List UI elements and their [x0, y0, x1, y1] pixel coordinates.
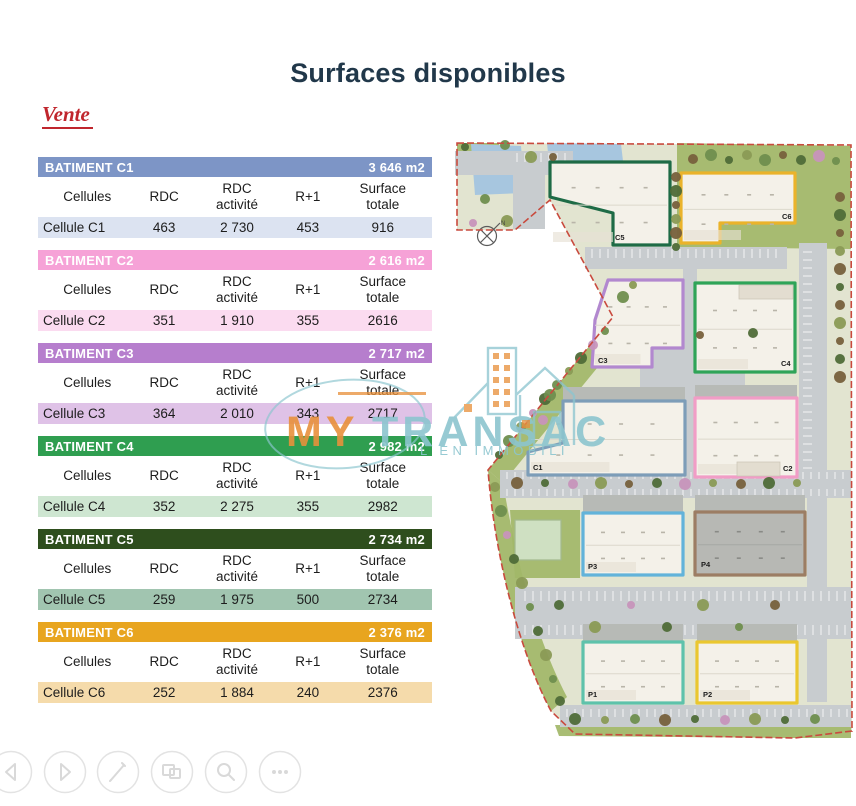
table-cell: 343	[282, 403, 333, 424]
column-header: R+1	[282, 270, 333, 310]
table-cell: 916	[333, 217, 432, 238]
table-cell: 1 975	[192, 589, 283, 610]
column-header: RDC	[137, 642, 192, 682]
tables-panel: BATIMENT C13 646 m2CellulesRDCRDC activi…	[38, 157, 432, 715]
table-cell: 252	[137, 682, 192, 703]
building-table-header: BATIMENT C13 646 m2	[38, 157, 432, 177]
building-name: BATIMENT C6	[45, 625, 134, 640]
table-cell: 2376	[333, 682, 432, 703]
surfaces-table: CellulesRDCRDC activitéR+1Surface totale…	[38, 177, 432, 238]
table-cell: 355	[282, 496, 333, 517]
table-cell: 453	[282, 217, 333, 238]
column-header: Cellules	[38, 177, 137, 217]
map-building-label: C6	[782, 212, 792, 221]
site-plan-svg: C5C6C3C4C1C2P3P4P1P2N	[455, 135, 856, 745]
table-cell: Cellule C6	[38, 682, 137, 703]
column-header: RDC	[137, 549, 192, 589]
map-building-P1: P1	[583, 642, 683, 703]
map-building-P3: P3	[583, 513, 683, 575]
zoom-search-button[interactable]	[206, 752, 247, 793]
table-cell: 351	[137, 310, 192, 331]
column-header: Surface totale	[333, 642, 432, 682]
surfaces-table: CellulesRDCRDC activitéR+1Surface totale…	[38, 270, 432, 331]
column-header: RDC	[137, 363, 192, 403]
section-label-vente: Vente	[42, 102, 93, 129]
table-cell: Cellule C1	[38, 217, 137, 238]
table-cell: 2717	[333, 403, 432, 424]
table-cell: 463	[137, 217, 192, 238]
edit-pen-button[interactable]	[98, 752, 139, 793]
map-building-label: C5	[615, 233, 625, 242]
building-table-2: BATIMENT C22 616 m2CellulesRDCRDC activi…	[38, 250, 432, 331]
building-table-1: BATIMENT C13 646 m2CellulesRDCRDC activi…	[38, 157, 432, 238]
table-cell: 1 910	[192, 310, 283, 331]
building-table-6: BATIMENT C62 376 m2CellulesRDCRDC activi…	[38, 622, 432, 703]
map-building-C4: C4	[695, 283, 795, 372]
table-cell: 2982	[333, 496, 432, 517]
column-header: RDC activité	[192, 642, 283, 682]
more-options-button[interactable]	[260, 752, 301, 793]
surfaces-table: CellulesRDCRDC activitéR+1Surface totale…	[38, 363, 432, 424]
table-cell: 355	[282, 310, 333, 331]
page-title: Surfaces disponibles	[0, 58, 856, 89]
table-cell: 364	[137, 403, 192, 424]
building-name: BATIMENT C4	[45, 439, 134, 454]
copy-images-button[interactable]	[152, 752, 193, 793]
column-header: Cellules	[38, 642, 137, 682]
map-building-label: C3	[598, 356, 608, 365]
table-cell: 1 884	[192, 682, 283, 703]
compass-north-label: N	[501, 221, 505, 227]
surfaces-table: CellulesRDCRDC activitéR+1Surface totale…	[38, 642, 432, 703]
map-building-label: P3	[588, 562, 597, 571]
map-building-P4: P4	[695, 512, 805, 575]
next-button[interactable]	[45, 752, 86, 793]
map-building-C2: C2	[695, 398, 797, 477]
column-header: Surface totale	[333, 363, 432, 403]
column-header: RDC activité	[192, 270, 283, 310]
building-name: BATIMENT C5	[45, 532, 134, 547]
column-header: RDC activité	[192, 177, 283, 217]
table-cell: 2616	[333, 310, 432, 331]
surfaces-table: CellulesRDCRDC activitéR+1Surface totale…	[38, 549, 432, 610]
annex-building	[515, 520, 561, 560]
table-cell: Cellule C4	[38, 496, 137, 517]
more-options-icon	[272, 770, 288, 774]
column-header: Cellules	[38, 270, 137, 310]
column-header: RDC	[137, 456, 192, 496]
building-table-header: BATIMENT C22 616 m2	[38, 250, 432, 270]
table-cell: 2734	[333, 589, 432, 610]
column-header: Surface totale	[333, 549, 432, 589]
table-cell: 500	[282, 589, 333, 610]
previous-button[interactable]	[0, 752, 32, 793]
building-name: BATIMENT C3	[45, 346, 134, 361]
map-building-label: P2	[703, 690, 712, 699]
column-header: R+1	[282, 642, 333, 682]
building-area: 2 734 m2	[368, 532, 425, 547]
viewer-toolbar	[0, 745, 330, 801]
column-header: R+1	[282, 363, 333, 403]
table-cell: 2 010	[192, 403, 283, 424]
column-header: Surface totale	[333, 177, 432, 217]
table-row: Cellule C14632 730453916	[38, 217, 432, 238]
column-header: Cellules	[38, 549, 137, 589]
table-cell: 240	[282, 682, 333, 703]
table-cell: 259	[137, 589, 192, 610]
column-header: RDC activité	[192, 363, 283, 403]
building-area: 2 616 m2	[368, 253, 425, 268]
building-table-4: BATIMENT C42 982 m2CellulesRDCRDC activi…	[38, 436, 432, 517]
column-header: RDC	[137, 177, 192, 217]
table-cell: 2 730	[192, 217, 283, 238]
table-row: Cellule C23511 9103552616	[38, 310, 432, 331]
map-building-label: P4	[701, 560, 711, 569]
map-building-label: P1	[588, 690, 597, 699]
table-cell: 2 275	[192, 496, 283, 517]
table-row: Cellule C33642 0103432717	[38, 403, 432, 424]
building-name: BATIMENT C2	[45, 253, 134, 268]
column-header: Cellules	[38, 363, 137, 403]
map-building-label: C2	[783, 464, 793, 473]
site-plan-map: C5C6C3C4C1C2P3P4P1P2N	[455, 135, 856, 745]
building-table-header: BATIMENT C52 734 m2	[38, 529, 432, 549]
building-table-3: BATIMENT C32 717 m2CellulesRDCRDC activi…	[38, 343, 432, 424]
table-cell: 352	[137, 496, 192, 517]
building-table-header: BATIMENT C32 717 m2	[38, 343, 432, 363]
map-building-label: C1	[533, 463, 543, 472]
building-area: 2 376 m2	[368, 625, 425, 640]
column-header: R+1	[282, 549, 333, 589]
column-header: RDC activité	[192, 456, 283, 496]
map-building-label: C4	[781, 359, 791, 368]
table-cell: Cellule C3	[38, 403, 137, 424]
map-building-P2: P2	[697, 642, 797, 703]
table-row: Cellule C62521 8842402376	[38, 682, 432, 703]
column-header: Surface totale	[333, 270, 432, 310]
building-area: 2 717 m2	[368, 346, 425, 361]
surfaces-table: CellulesRDCRDC activitéR+1Surface totale…	[38, 456, 432, 517]
column-header: RDC activité	[192, 549, 283, 589]
toolbar-svg	[0, 745, 330, 801]
column-header: Surface totale	[333, 456, 432, 496]
table-cell: Cellule C5	[38, 589, 137, 610]
building-area: 3 646 m2	[368, 160, 425, 175]
building-table-header: BATIMENT C62 376 m2	[38, 622, 432, 642]
building-table-5: BATIMENT C52 734 m2CellulesRDCRDC activi…	[38, 529, 432, 610]
column-header: RDC	[137, 270, 192, 310]
table-row: Cellule C52591 9755002734	[38, 589, 432, 610]
column-header: Cellules	[38, 456, 137, 496]
building-name: BATIMENT C1	[45, 160, 134, 175]
building-table-header: BATIMENT C42 982 m2	[38, 436, 432, 456]
building-area: 2 982 m2	[368, 439, 425, 454]
table-cell: Cellule C2	[38, 310, 137, 331]
column-header: R+1	[282, 177, 333, 217]
table-row: Cellule C43522 2753552982	[38, 496, 432, 517]
column-header: R+1	[282, 456, 333, 496]
